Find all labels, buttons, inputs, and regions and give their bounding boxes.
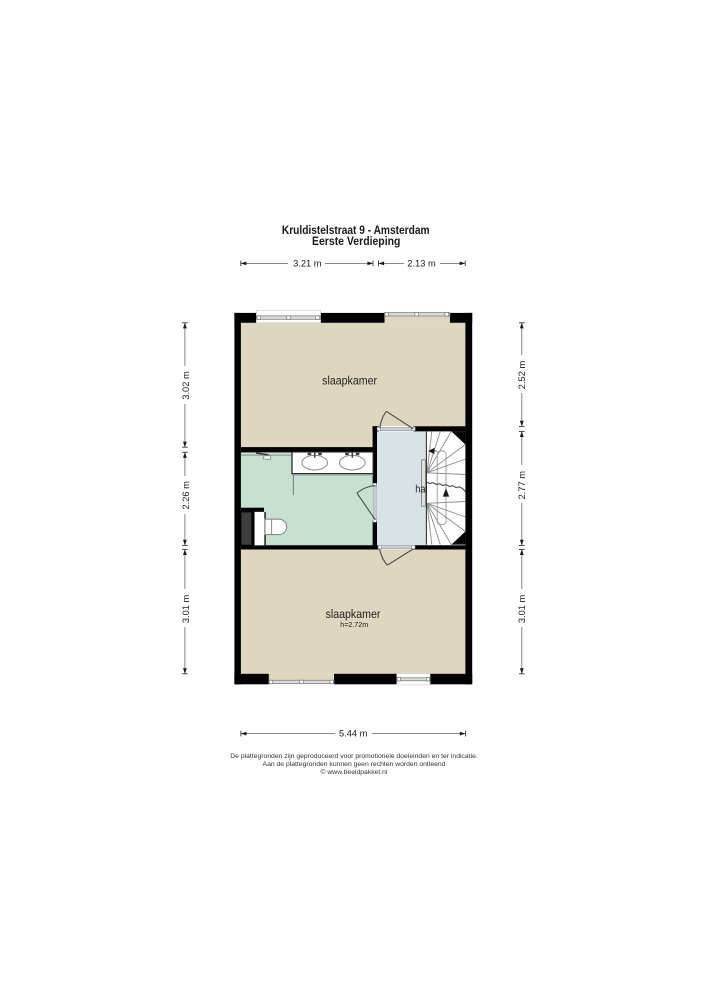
svg-text:3.01 m: 3.01 m xyxy=(517,594,527,623)
svg-text:3.02 m: 3.02 m xyxy=(181,371,191,400)
svg-text:3.01 m: 3.01 m xyxy=(181,594,191,623)
svg-text:slaapkamer: slaapkamer xyxy=(322,375,377,388)
svg-text:2.52 m: 2.52 m xyxy=(517,361,527,390)
svg-text:5.44 m: 5.44 m xyxy=(339,729,368,739)
svg-text:Aan de plattegronden kunnen ge: Aan de plattegronden kunnen geen rechten… xyxy=(263,761,446,768)
svg-text:Eerste Verdieping: Eerste Verdieping xyxy=(312,235,400,248)
svg-text:2.77 m: 2.77 m xyxy=(517,471,527,500)
svg-text:© www.beeldpakket.nl: © www.beeldpakket.nl xyxy=(321,768,388,776)
svg-text:3.21 m: 3.21 m xyxy=(293,258,322,268)
svg-text:h=2.72m: h=2.72m xyxy=(340,620,368,629)
svg-text:2.26 m: 2.26 m xyxy=(181,481,191,510)
svg-text:De plattegronden zijn geproduc: De plattegronden zijn geproduceerd voor … xyxy=(230,753,478,760)
svg-text:2.13 m: 2.13 m xyxy=(407,258,436,268)
svg-text:hal: hal xyxy=(415,484,427,496)
